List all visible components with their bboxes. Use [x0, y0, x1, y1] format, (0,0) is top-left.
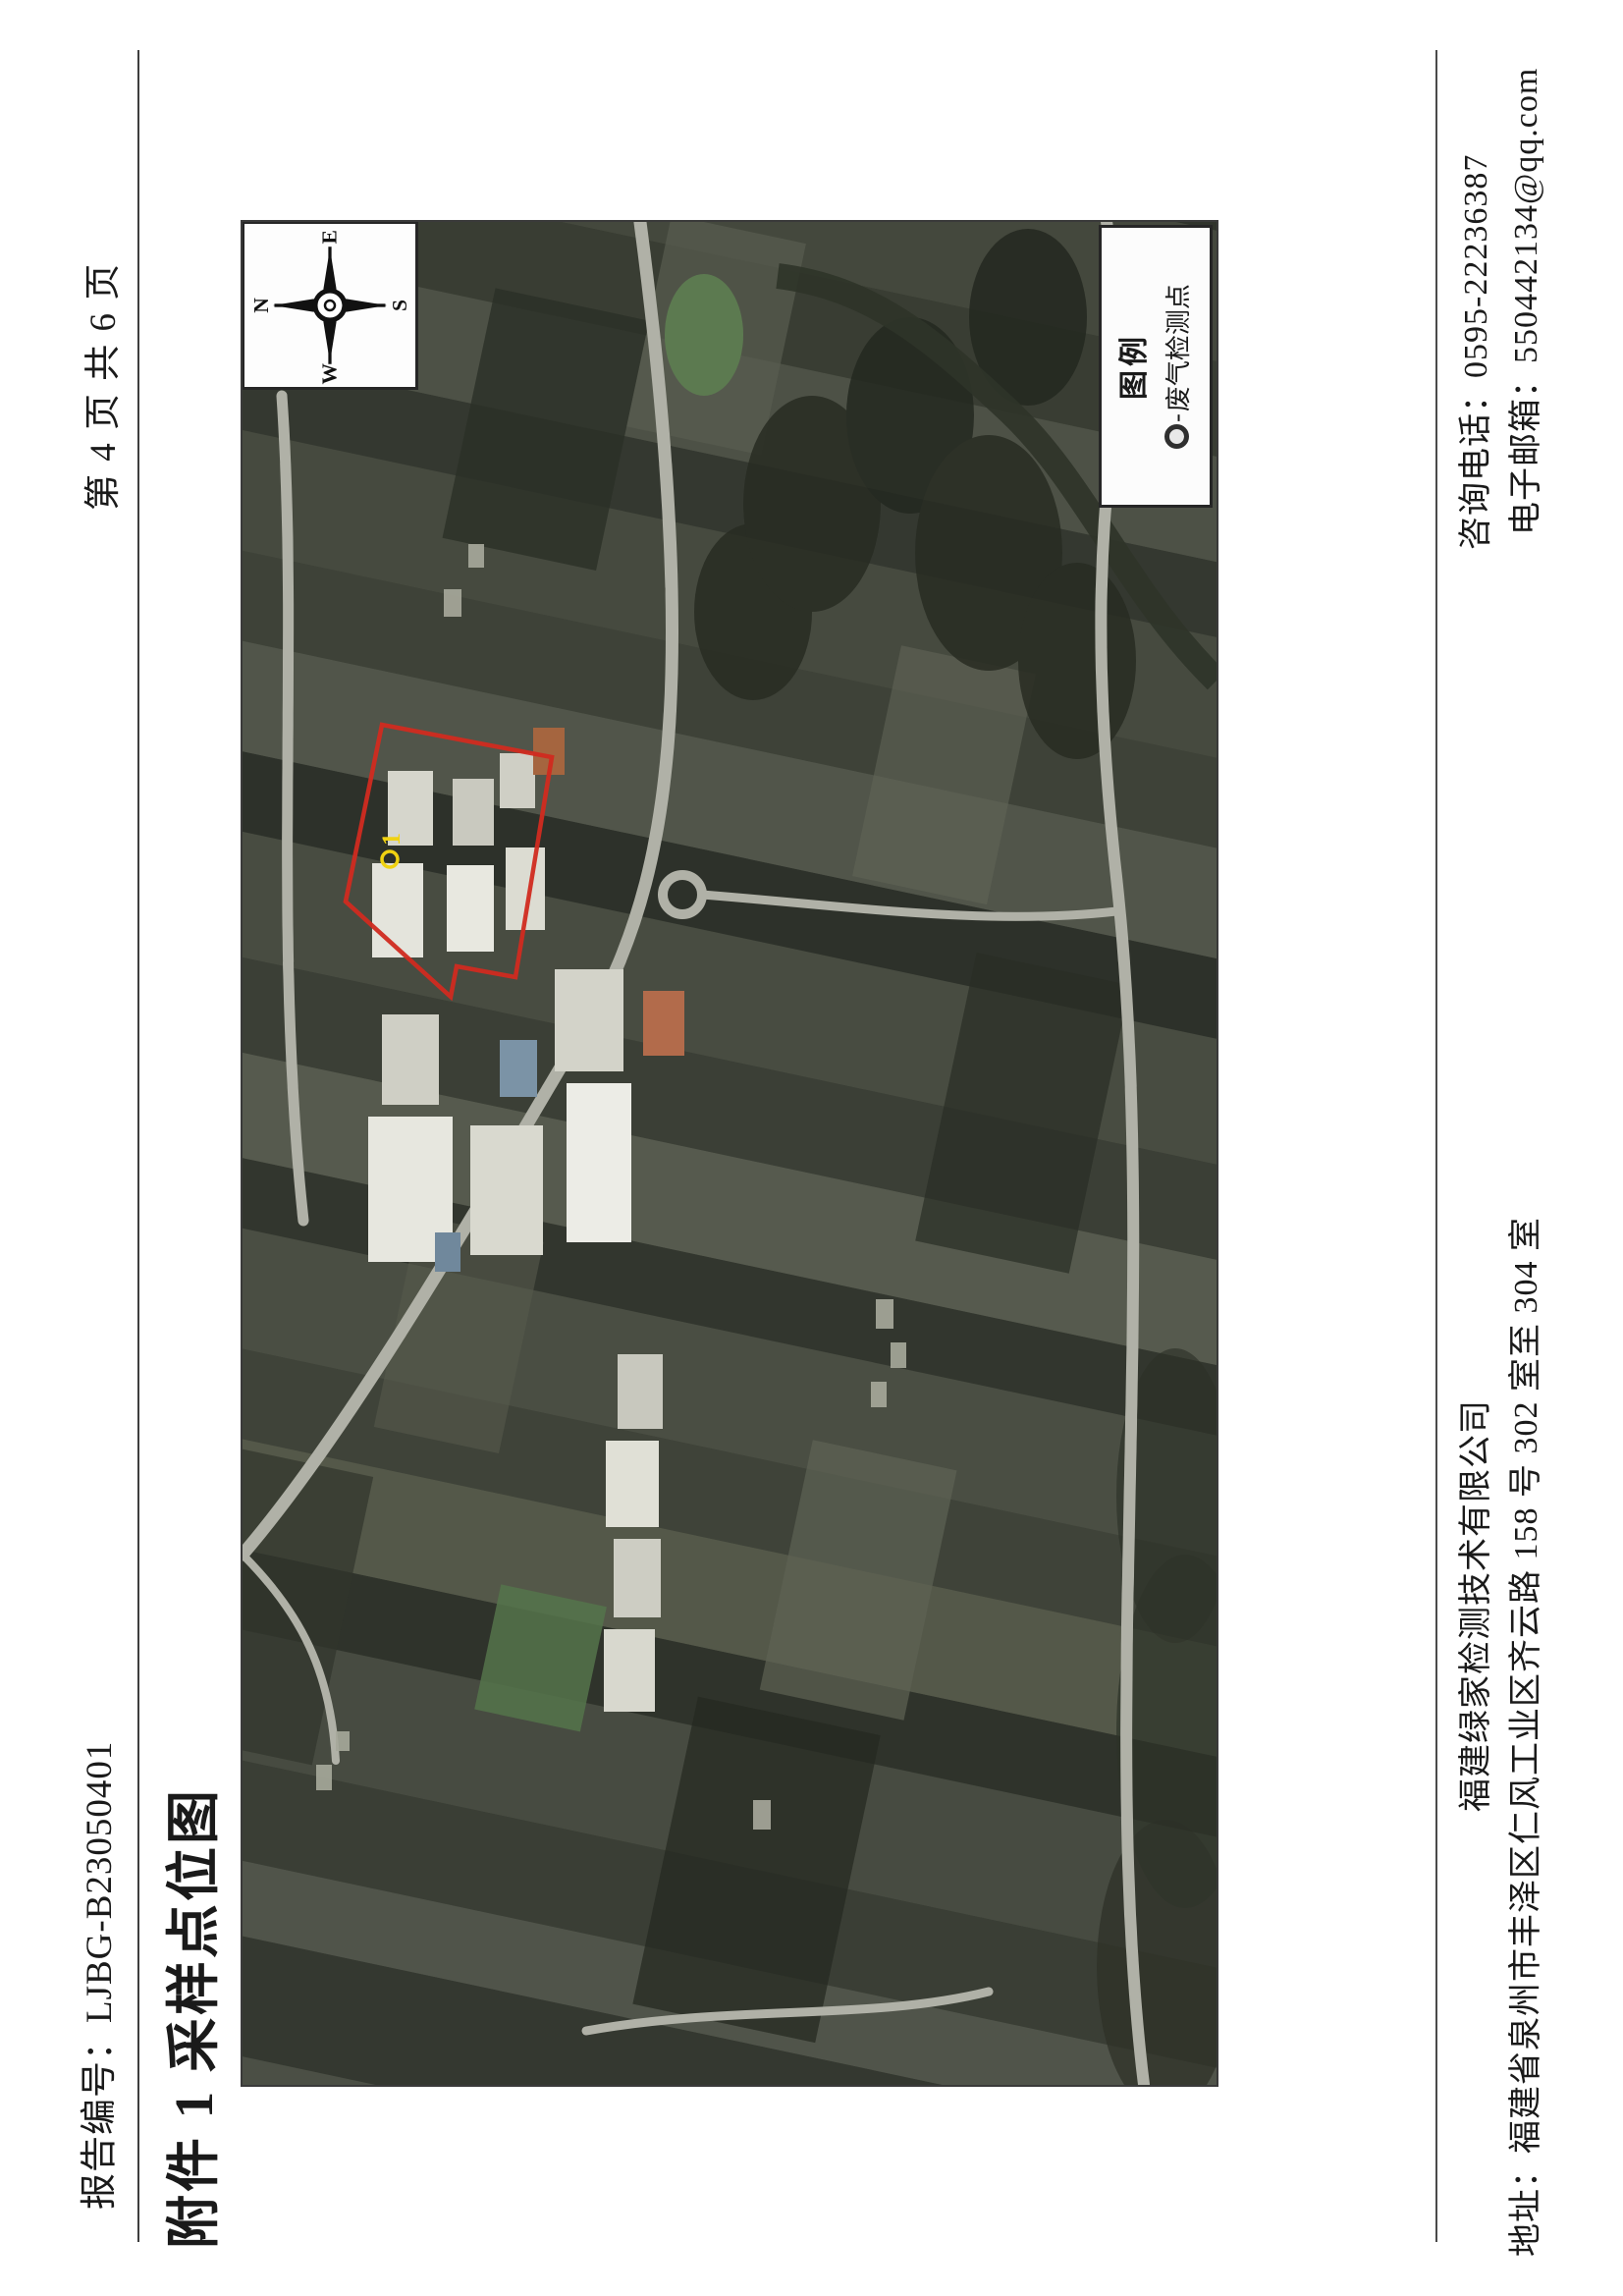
- compass-icon: N S W E: [244, 224, 415, 387]
- report-sheet: 报告编号：LJBG-B23050401 第 4 页 共 6 页 附件 1 采样点…: [0, 0, 1623, 2296]
- satellite-image: 1: [243, 222, 1217, 2085]
- legend-title: 图例: [1109, 228, 1153, 505]
- pond: [665, 274, 743, 396]
- footer-phone: 咨询电话：0595-22236387: [1448, 154, 1496, 550]
- report-number: 报告编号：LJBG-B23050401: [69, 1741, 122, 2210]
- footer-company: 福建绿家检测技术有限公司: [1448, 1399, 1496, 1812]
- compass-e: E: [318, 230, 342, 244]
- compass-n: N: [249, 298, 273, 313]
- scanned-page: 报告编号：LJBG-B23050401 第 4 页 共 6 页 附件 1 采样点…: [0, 0, 1623, 2296]
- footer-rule: [1435, 50, 1437, 2242]
- compass-s: S: [388, 300, 411, 311]
- legend-item: -废气检测点: [1159, 228, 1195, 505]
- attachment-title: 附件 1 采样点位图: [149, 1787, 228, 2249]
- footer-email: 电子邮箱：550442134@qq.com: [1498, 68, 1546, 535]
- footer-address: 地址：福建省泉州市丰泽区仁风工业区齐云路 158 号 302 室至 304 室: [1498, 1217, 1546, 2257]
- compass: N S W E: [242, 221, 418, 390]
- satellite-map: 1 N S W E: [241, 220, 1218, 2087]
- header-rule: [137, 50, 139, 2242]
- page-indicator: 第 4 页 共 6 页: [73, 262, 126, 511]
- compass-w: W: [318, 363, 342, 385]
- map-legend: 图例 -废气检测点: [1099, 225, 1213, 508]
- legend-item-label: 废气检测点: [1159, 284, 1195, 411]
- sampling-point-label: 1: [377, 833, 406, 846]
- legend-connector: -: [1163, 413, 1192, 422]
- monitoring-point-circle-icon: [1164, 424, 1189, 449]
